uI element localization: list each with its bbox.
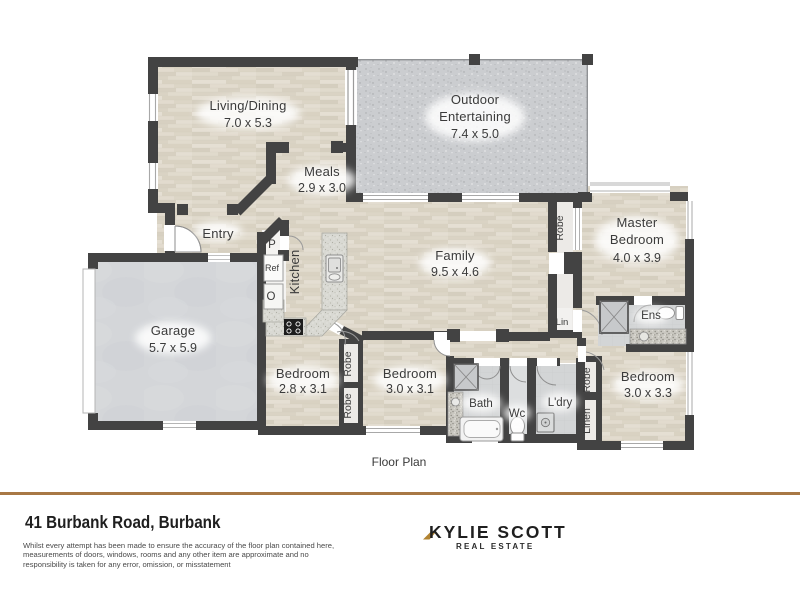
svg-text:7.4 x 5.0: 7.4 x 5.0: [451, 127, 499, 141]
svg-text:9.5 x 4.6: 9.5 x 4.6: [431, 265, 479, 279]
svg-text:Bedroom: Bedroom: [276, 366, 330, 381]
svg-text:Bedroom: Bedroom: [383, 366, 437, 381]
svg-text:L'dry: L'dry: [548, 397, 573, 409]
svg-text:Lin: Lin: [556, 317, 569, 328]
svg-text:Living/Dining: Living/Dining: [209, 98, 286, 113]
svg-text:Linen: Linen: [581, 408, 593, 434]
svg-text:Robe: Robe: [342, 351, 354, 376]
svg-text:Bath: Bath: [469, 398, 493, 410]
svg-text:3.0 x 3.1: 3.0 x 3.1: [386, 382, 434, 396]
svg-text:Floor Plan: Floor Plan: [372, 455, 427, 469]
svg-text:Ref: Ref: [265, 263, 280, 273]
svg-text:Entry: Entry: [202, 226, 234, 241]
svg-text:Ens: Ens: [641, 310, 661, 322]
svg-text:Master: Master: [617, 215, 658, 230]
svg-text:5.7 x 5.9: 5.7 x 5.9: [149, 341, 197, 355]
svg-text:O: O: [267, 291, 276, 303]
svg-text:7.0 x 5.3: 7.0 x 5.3: [224, 116, 272, 130]
svg-text:4.0 x 3.9: 4.0 x 3.9: [613, 251, 661, 265]
svg-text:Bedroom: Bedroom: [621, 369, 675, 384]
svg-text:KYLIE SCOTT: KYLIE SCOTT: [429, 522, 567, 542]
svg-text:Kitchen: Kitchen: [287, 250, 302, 295]
svg-text:P: P: [268, 239, 276, 251]
svg-text:Family: Family: [435, 248, 475, 263]
svg-text:Robe: Robe: [342, 393, 354, 418]
svg-text:3.0 x 3.3: 3.0 x 3.3: [624, 386, 672, 400]
svg-text:2.9 x 3.0: 2.9 x 3.0: [298, 181, 346, 195]
svg-text:Robe: Robe: [581, 367, 593, 392]
svg-text:Robe: Robe: [554, 215, 566, 240]
svg-text:Entertaining: Entertaining: [439, 109, 511, 124]
svg-text:Wc: Wc: [509, 408, 526, 420]
svg-text:Meals: Meals: [304, 164, 340, 179]
svg-text:2.8 x 3.1: 2.8 x 3.1: [279, 382, 327, 396]
svg-text:Bedroom: Bedroom: [610, 232, 664, 247]
svg-text:Outdoor: Outdoor: [451, 92, 500, 107]
svg-text:Garage: Garage: [151, 323, 196, 338]
